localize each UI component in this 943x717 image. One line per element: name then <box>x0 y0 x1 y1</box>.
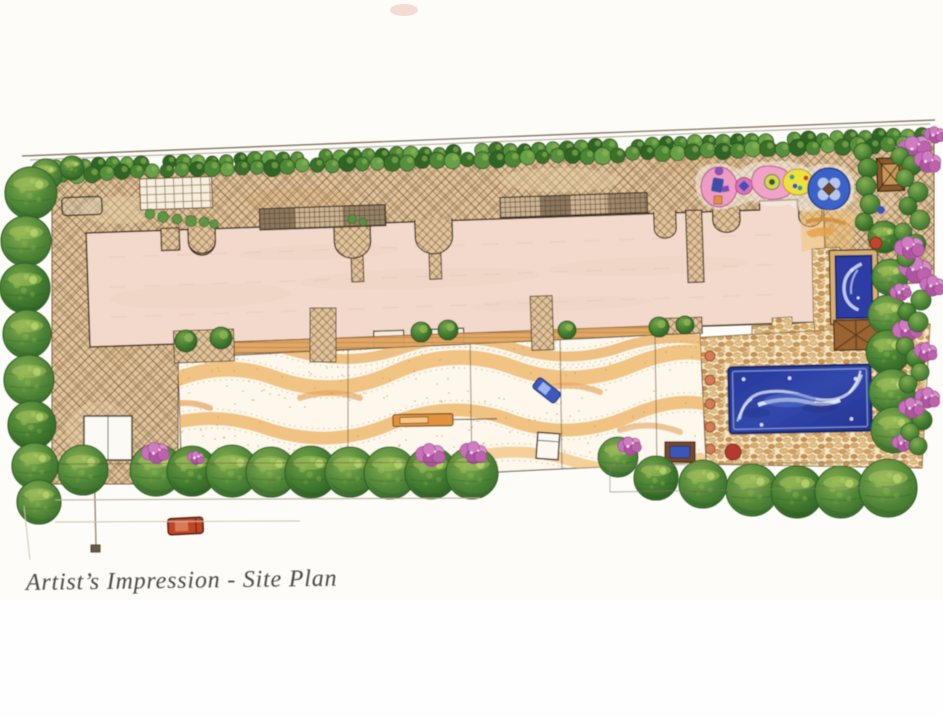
svg-text:Artist’s Impression - Site P: Artist’s Impression - Site Plan <box>24 566 338 596</box>
